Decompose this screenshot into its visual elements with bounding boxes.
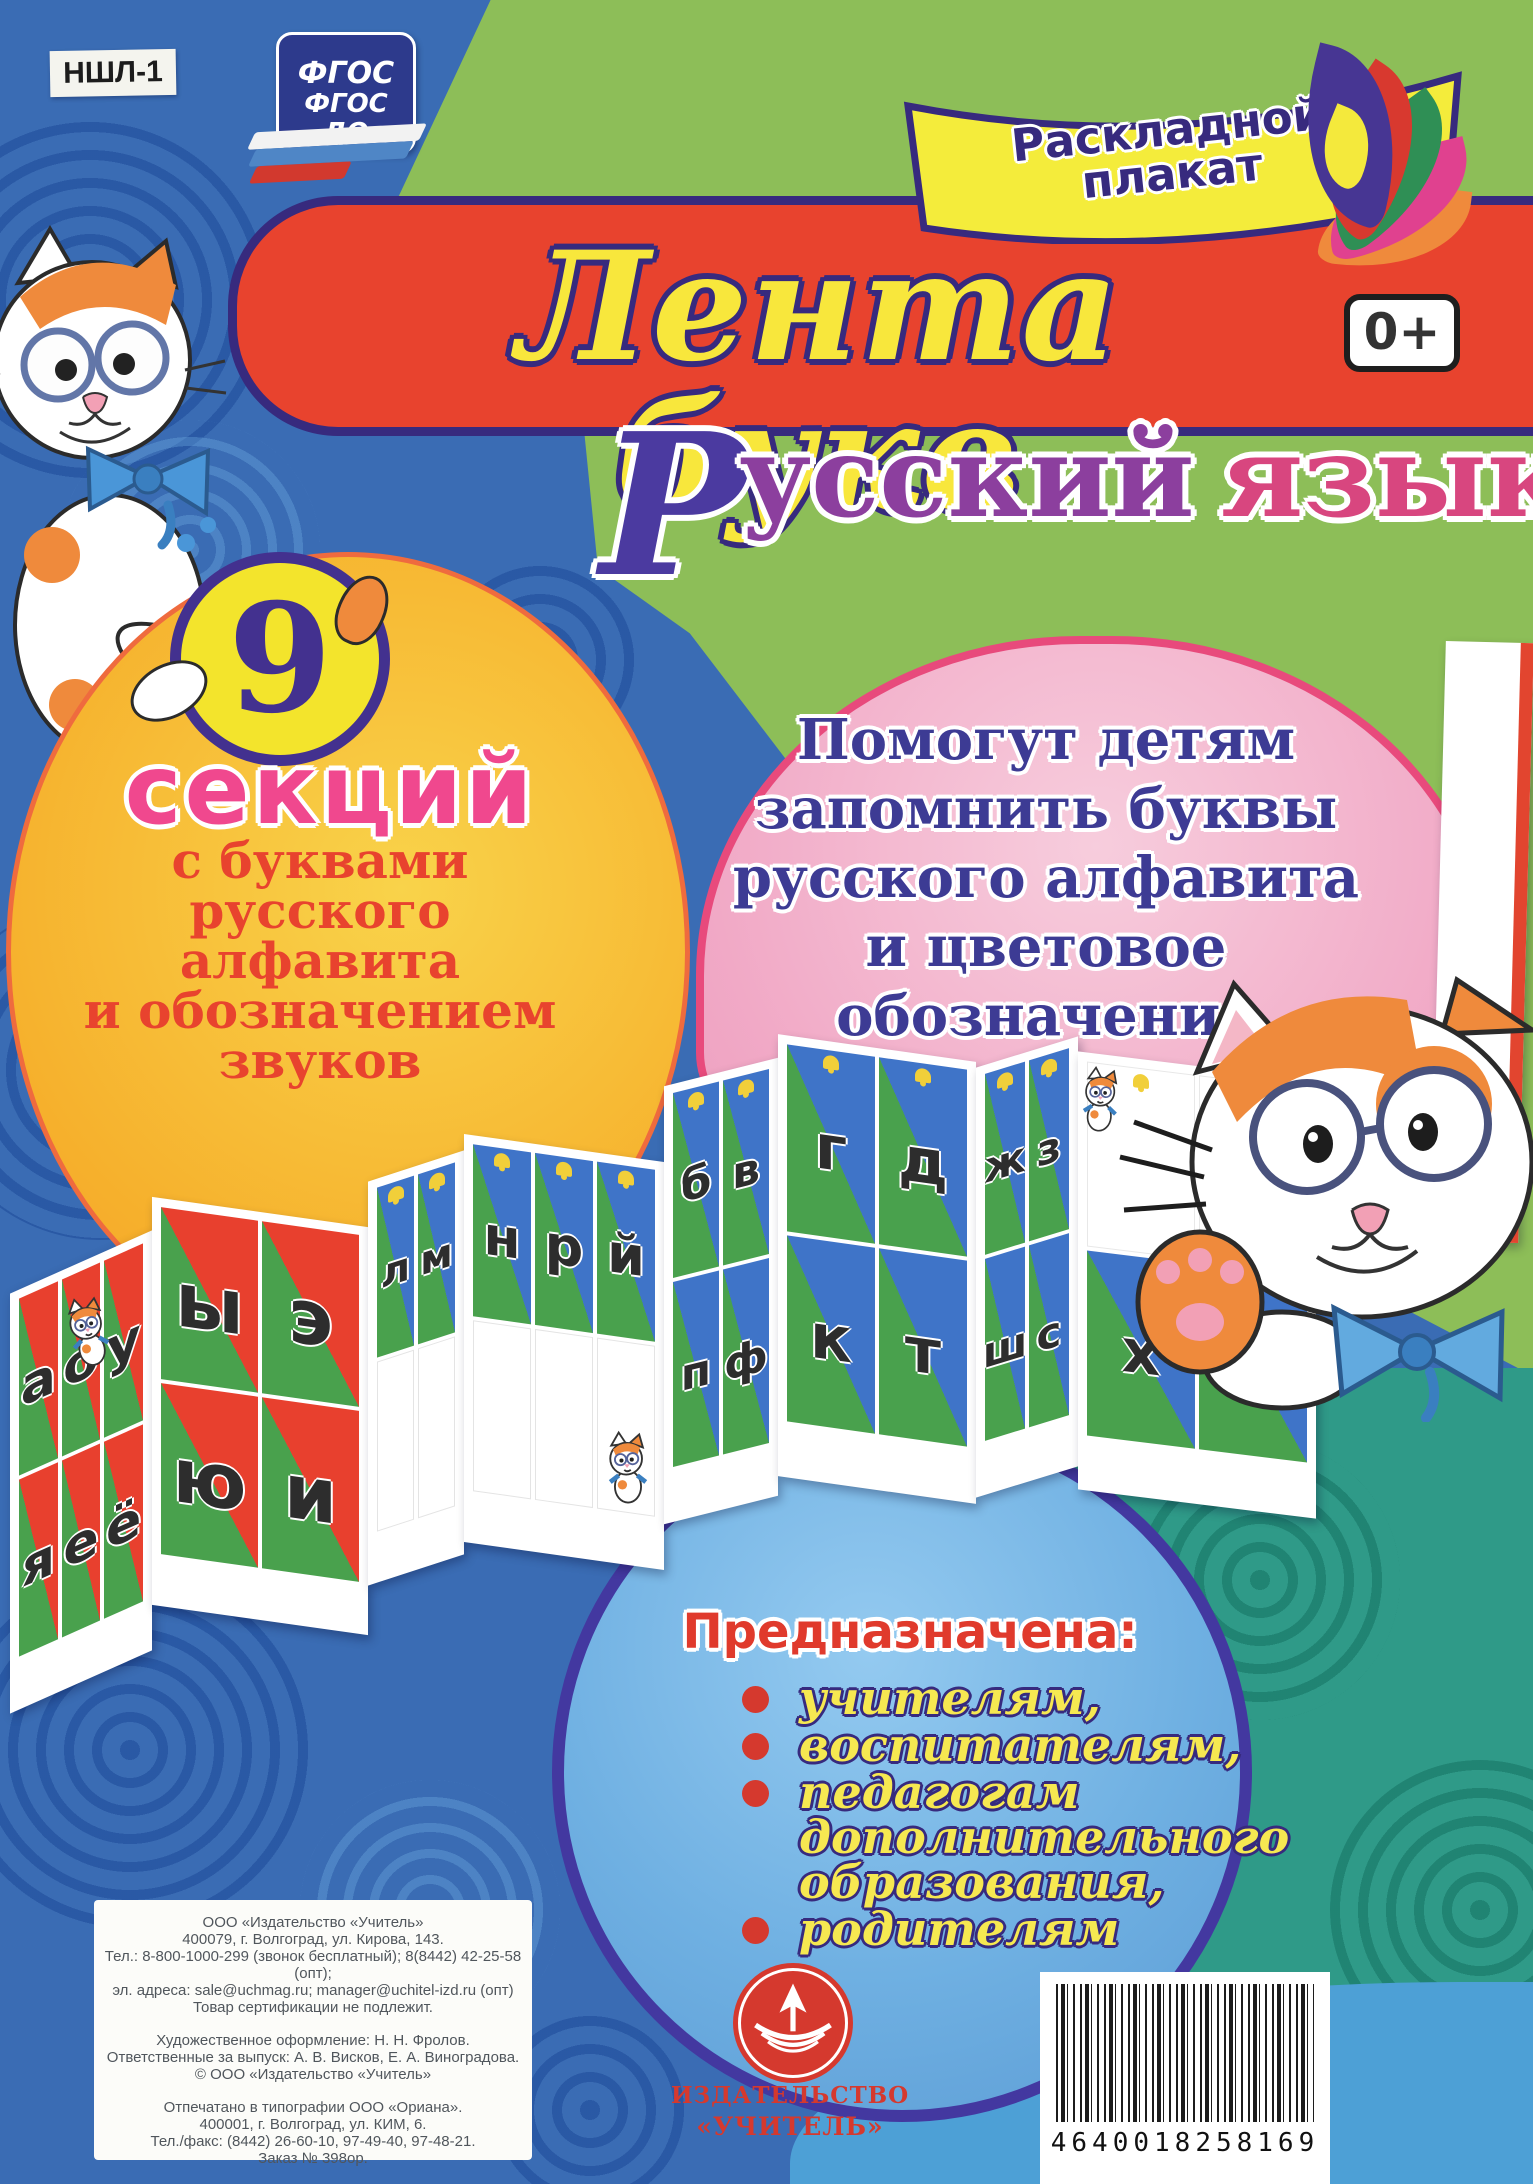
letter-row (1448, 650, 1512, 907)
letter-cell: б (673, 1081, 719, 1277)
letter-row: жз (985, 1048, 1069, 1255)
bell-icon (429, 1171, 445, 1190)
letter-label: м (420, 1229, 453, 1286)
imprint-panel: ООО «Издательство «Учитель»400079, г. Во… (94, 1900, 532, 2160)
letter-label: д (898, 1121, 948, 1201)
letter-row: бв (673, 1069, 769, 1278)
barcode: 4640018258169 (1040, 1972, 1330, 2184)
letter-label: и (284, 1445, 337, 1541)
letter-label: а (21, 1345, 56, 1421)
letter-label: п (681, 1343, 711, 1402)
publisher-name-line-1: ИЗДАТЕЛЬСТВО (640, 2082, 940, 2111)
imprint-line: эл. адреса: sale@uchmag.ru; manager@uchi… (104, 1982, 522, 1999)
imprint-block: ООО «Издательство «Учитель»400079, г. Во… (104, 1914, 522, 2016)
letter-cell: н (473, 1144, 531, 1324)
bell-icon (556, 1161, 572, 1177)
bell-icon (915, 1067, 931, 1083)
letter-row: нрй (473, 1144, 655, 1341)
letter-cell: л (377, 1176, 414, 1358)
letter-label: ж (985, 1131, 1025, 1193)
letter-row: юи (161, 1383, 359, 1582)
letter-label: е (63, 1506, 98, 1582)
bell-icon (1041, 1057, 1057, 1076)
letter-cell (1448, 650, 1512, 907)
letter-cell (473, 1320, 531, 1500)
bell-icon (494, 1152, 510, 1168)
letter-row: кт (787, 1235, 967, 1447)
letter-cell: ф (723, 1258, 769, 1454)
letter-label: ф (724, 1329, 768, 1391)
letter-cell (535, 1329, 593, 1509)
letter-label: с (1037, 1306, 1062, 1363)
barcode-bars (1056, 1984, 1314, 2122)
publisher-logo (738, 1968, 848, 2078)
imprint-line: © ООО «Издательство «Учитель» (104, 2066, 522, 2083)
letter-cell: г (787, 1044, 875, 1243)
imprint-line: Заказ № 398ор. (104, 2150, 522, 2167)
letter-label: я (22, 1526, 55, 1601)
letter-label: т (905, 1312, 941, 1390)
imprint-line: Тел./факс: (8442) 26-60-10, 97-49-40, 97… (104, 2133, 522, 2150)
letter-label: н (483, 1204, 520, 1272)
letter-label: з (1037, 1121, 1061, 1177)
publisher-name: ИЗДАТЕЛЬСТВО «УЧИТЕЛЬ» (640, 2082, 940, 2142)
letter-cell: з (1029, 1048, 1069, 1241)
letter-row: ыэ (161, 1207, 359, 1406)
letter-row: лм (377, 1162, 455, 1357)
letter-cell: и (262, 1397, 359, 1582)
letter-cell: э (262, 1221, 359, 1406)
bell-icon (618, 1170, 634, 1186)
letter-label: ё (106, 1487, 141, 1563)
imprint-line: Товар сертификации не подлежит. (104, 1999, 522, 2016)
letter-cell: ж (985, 1062, 1025, 1255)
letter-cell: ё (104, 1424, 143, 1618)
imprint-block: Художественное оформление: Н. Н. Фролов.… (104, 2032, 522, 2083)
imprint-line: Отпечатано в типографии ООО «Ориана». (104, 2099, 522, 2116)
bell-icon (823, 1054, 839, 1070)
imprint-line: 400001, г. Волгоград, ул. КИМ, 6. (104, 2116, 522, 2133)
cat-mascot-right (1112, 972, 1533, 1422)
letter-cell: е (62, 1443, 101, 1637)
letter-row: пф (673, 1258, 769, 1467)
letter-cell: й (597, 1162, 655, 1342)
letter-label: б (681, 1154, 712, 1213)
letter-cell: ы (161, 1207, 258, 1392)
letter-label: ш (985, 1316, 1025, 1379)
mini-cat-sticker (600, 1430, 656, 1506)
bell-icon (688, 1090, 704, 1108)
letter-cell: с (1029, 1233, 1069, 1426)
poster-cover: Лента букв 0+ Раскладной плакат НШЛ-1 ФГ… (0, 0, 1533, 2184)
letter-cell: в (723, 1069, 769, 1265)
letter-cell: ю (161, 1383, 258, 1568)
letter-label: р (545, 1213, 584, 1281)
letter-label: й (607, 1221, 645, 1289)
imprint-line: Ответственные за выпуск: А. В. Висков, Е… (104, 2049, 522, 2066)
letter-cell: д (879, 1057, 967, 1256)
russian-flag-icon (251, 124, 426, 187)
imprint-line: 400079, г. Волгоград, ул. Кирова, 143. (104, 1931, 522, 1948)
imprint-line: ООО «Издательство «Учитель» (104, 1914, 522, 1931)
barcode-number: 4640018258169 (1040, 2130, 1330, 2156)
imprint-block: Отпечатано в типографии ООО «Ориана».400… (104, 2099, 522, 2167)
letter-cell: а (19, 1281, 58, 1475)
letter-panel: лм (368, 1150, 464, 1585)
letter-cell (418, 1336, 455, 1518)
letter-panel: гдкт (778, 1034, 976, 1504)
letter-row (377, 1336, 455, 1531)
imprint-line: Художественное оформление: Н. Н. Фролов. (104, 2032, 522, 2049)
letter-label: в (732, 1142, 760, 1200)
letter-cell: р (535, 1153, 593, 1333)
letter-cell: ш (985, 1247, 1025, 1440)
letter-cell (377, 1349, 414, 1531)
letter-panel: ыэюи (152, 1197, 368, 1635)
letter-label: л (381, 1243, 410, 1299)
letter-row: гд (787, 1044, 967, 1256)
letter-panel: жзшс (976, 1036, 1078, 1497)
letter-label: г (815, 1109, 847, 1187)
letter-cell: м (418, 1162, 455, 1344)
letter-cell: т (879, 1248, 967, 1447)
letter-label: к (810, 1299, 852, 1378)
letter-label: ю (173, 1430, 247, 1529)
book-quill-icon (741, 1971, 845, 2075)
letter-cell: п (673, 1270, 719, 1466)
letter-label: э (288, 1270, 333, 1365)
letter-cell: я (19, 1462, 58, 1656)
letter-panel: бвпф (664, 1058, 778, 1524)
publisher-name-line-2: «УЧИТЕЛЬ» (640, 2111, 940, 2142)
letter-row: шс (985, 1233, 1069, 1440)
bell-icon (388, 1184, 404, 1203)
letter-label: ы (175, 1254, 244, 1353)
letter-cell: к (787, 1235, 875, 1434)
bell-icon (738, 1078, 754, 1096)
bell-icon (997, 1070, 1013, 1089)
imprint-line: Тел.: 8-800-1000-299 (звонок бесплатный)… (104, 1948, 522, 1982)
